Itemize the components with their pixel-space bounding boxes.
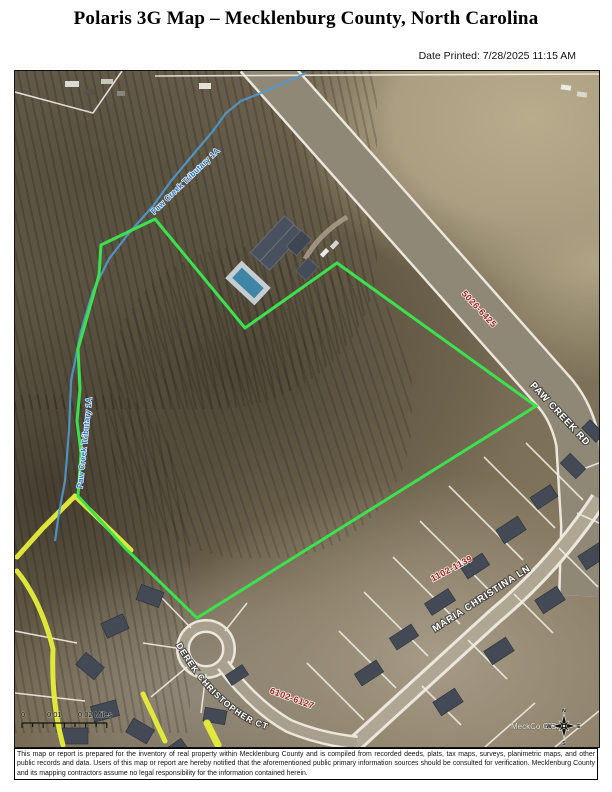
road-paw-creek — [257, 71, 583, 596]
pool — [225, 261, 271, 306]
disclaimer-text: This map or report is prepared for the i… — [14, 748, 598, 780]
compass-e: E — [577, 724, 581, 730]
road-maria-christina — [345, 499, 599, 747]
map-overlay: 5026-6425 1102-1139 6102-6127 PAW CREEK … — [15, 71, 599, 747]
parcel-lines — [15, 71, 599, 747]
vehicles — [320, 240, 339, 258]
scale-tick-0: 0 — [21, 710, 25, 719]
label-creek-top: Paw Creek Tributary 1A — [149, 146, 221, 216]
scale-tick-2: 0.02 Miles — [78, 710, 112, 719]
compass-w: W — [546, 724, 552, 730]
page-title: Polaris 3G Map – Mecklenburg County, Nor… — [0, 8, 612, 30]
compass-s: S — [562, 741, 566, 747]
parcel-range-derek-christopher: 6102-6127 — [268, 686, 315, 711]
compass-n: N — [562, 709, 566, 715]
main-house — [225, 215, 339, 305]
outbuildings — [65, 79, 587, 98]
scale-tick-1: 0.01 — [47, 710, 62, 719]
date-printed: Date Printed: 7/28/2025 11:15 AM — [419, 50, 576, 62]
map-image: 5026-6425 1102-1139 6102-6127 PAW CREEK … — [14, 70, 600, 748]
water-labels: Paw Creek Tributary 1A Paw Creek Tributa… — [75, 146, 221, 489]
creek-line — [55, 73, 306, 541]
